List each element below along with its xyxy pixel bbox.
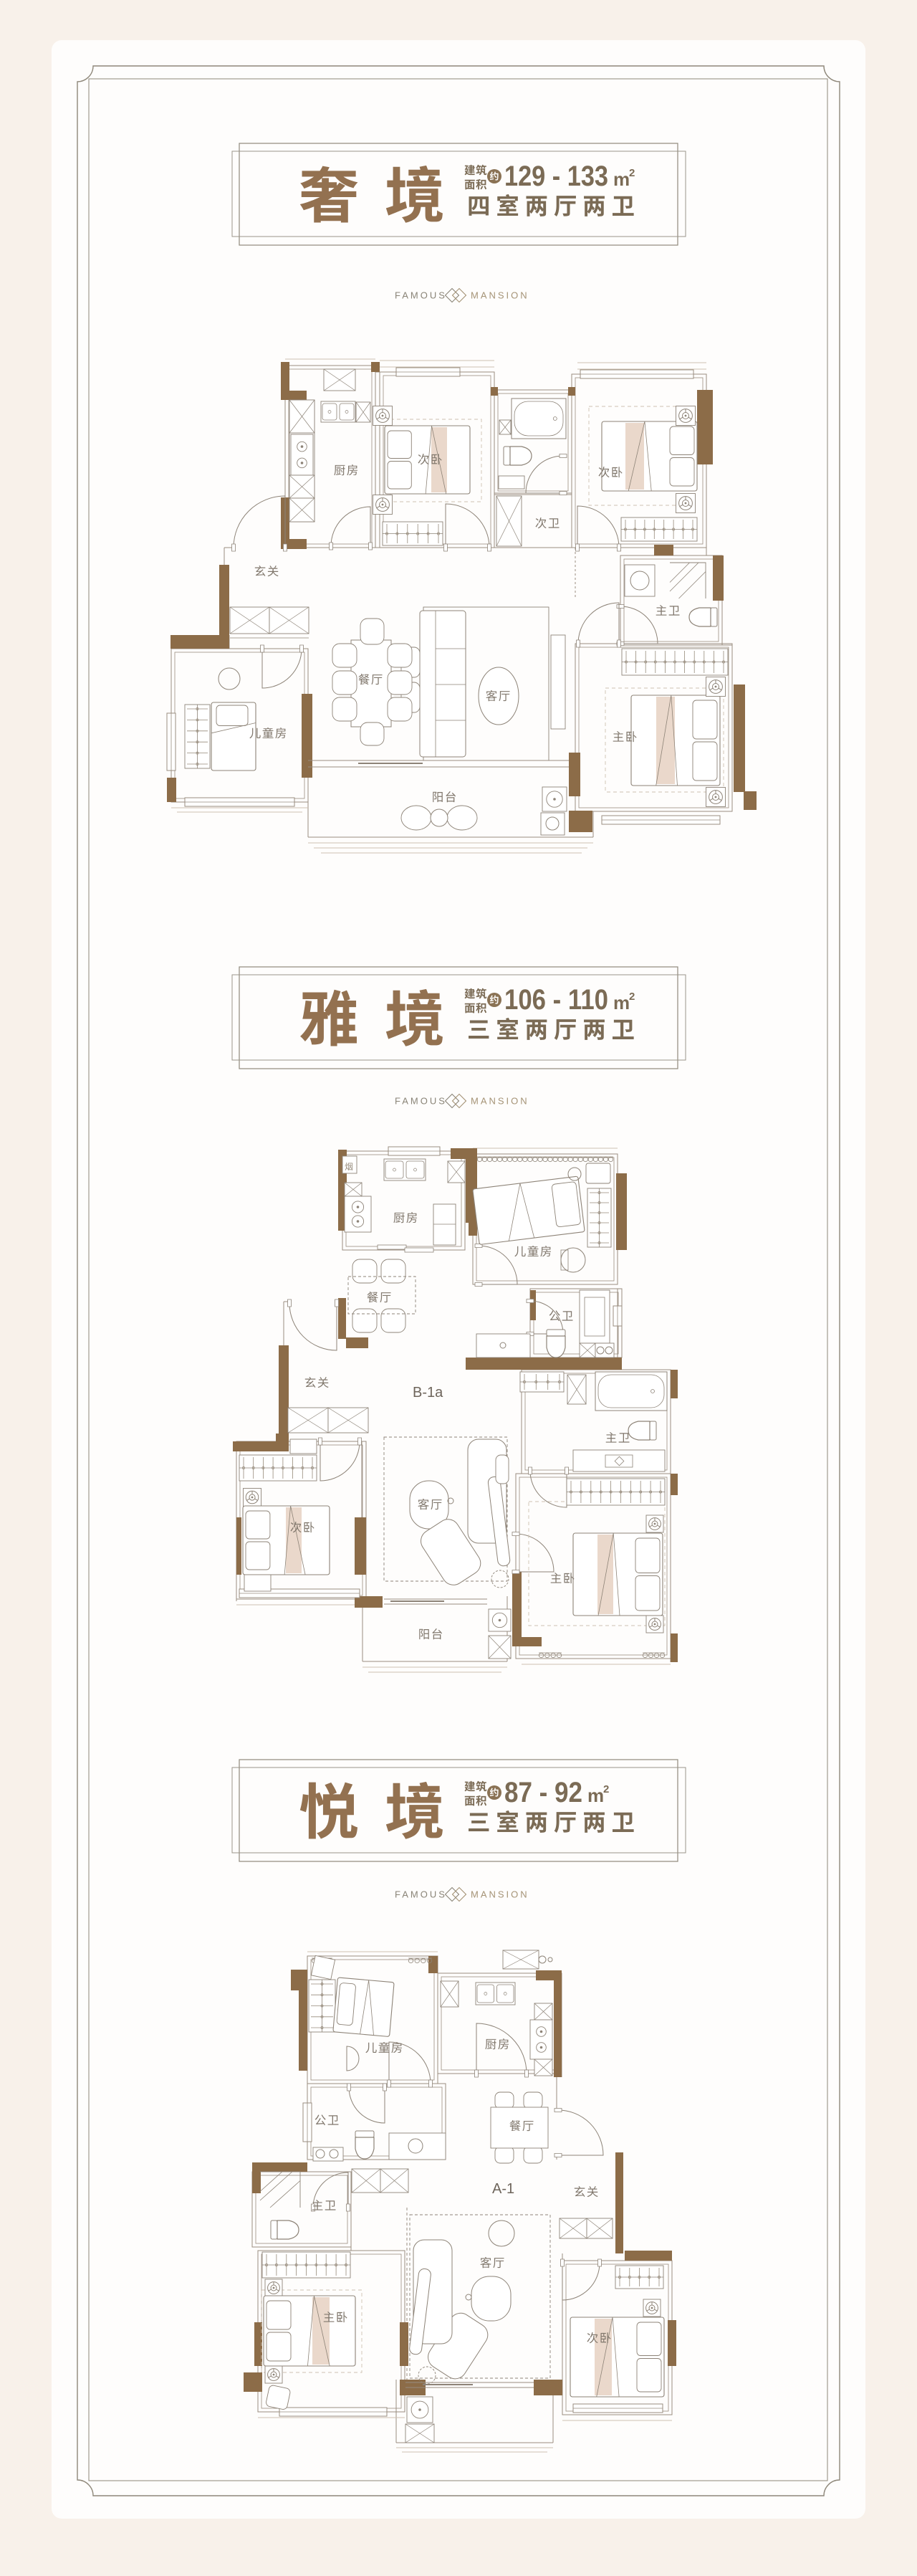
svg-text:2: 2 [629,167,635,179]
svg-text:B-1a: B-1a [413,1385,443,1401]
svg-text:m: m [613,992,630,1013]
svg-text:MANSION: MANSION [471,290,529,301]
svg-text:MANSION: MANSION [471,1889,529,1900]
svg-text:129 - 133: 129 - 133 [504,161,608,192]
svg-text:FAMOUS: FAMOUS [395,1096,447,1107]
svg-text:FAMOUS: FAMOUS [395,290,447,301]
svg-text:87 - 92: 87 - 92 [504,1777,582,1808]
svg-text:2: 2 [603,1783,609,1795]
svg-text:106 - 110: 106 - 110 [504,984,608,1016]
svg-text:2: 2 [629,991,635,1003]
svg-text:MANSION: MANSION [471,1096,529,1107]
svg-text:FAMOUS: FAMOUS [395,1889,447,1900]
svg-text:m: m [587,1785,604,1806]
svg-text:m: m [613,168,630,190]
svg-text:A-1: A-1 [492,2181,514,2197]
